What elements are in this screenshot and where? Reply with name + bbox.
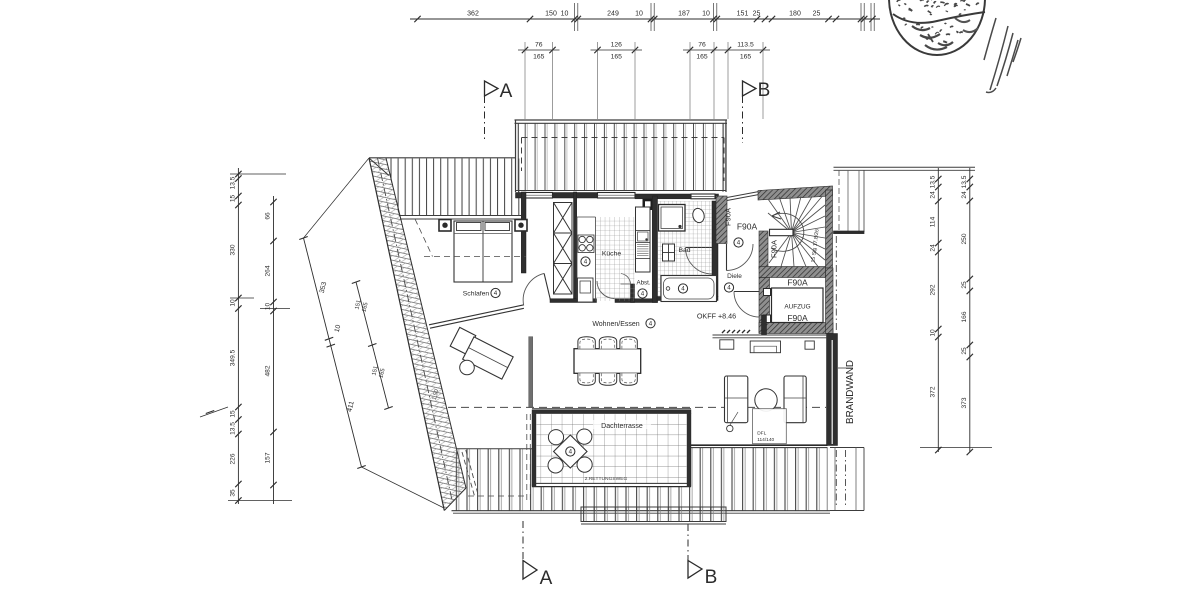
- svg-text:150: 150: [545, 11, 557, 18]
- svg-text:4: 4: [681, 286, 685, 293]
- svg-text:249: 249: [607, 11, 619, 18]
- svg-text:114: 114: [929, 216, 936, 227]
- svg-text:114/140: 114/140: [757, 437, 774, 443]
- svg-text:Schlafen: Schlafen: [463, 291, 490, 298]
- svg-text:24: 24: [929, 244, 936, 252]
- svg-text:Wohnen/Essen: Wohnen/Essen: [592, 321, 639, 328]
- svg-text:362: 362: [467, 11, 479, 18]
- svg-text:10: 10: [702, 11, 710, 18]
- svg-text:DFL: DFL: [757, 431, 766, 437]
- svg-text:250: 250: [961, 233, 968, 244]
- svg-text:13.5: 13.5: [230, 176, 237, 189]
- svg-text:76: 76: [535, 42, 543, 49]
- svg-text:Dachterrasse: Dachterrasse: [601, 423, 643, 430]
- svg-text:10: 10: [561, 11, 569, 18]
- svg-text:10: 10: [635, 11, 643, 18]
- svg-text:66: 66: [265, 212, 272, 220]
- svg-text:Bad: Bad: [678, 247, 690, 254]
- svg-text:330: 330: [230, 244, 237, 255]
- svg-text:180: 180: [789, 11, 801, 18]
- svg-text:4: 4: [584, 259, 588, 266]
- svg-text:25: 25: [753, 11, 761, 18]
- svg-text:BRANDWAND: BRANDWAND: [845, 360, 856, 424]
- svg-text:AUFZUG: AUFZUG: [784, 304, 810, 311]
- svg-text:165: 165: [696, 54, 708, 61]
- svg-text:113.5: 113.5: [737, 42, 754, 49]
- svg-text:166: 166: [961, 311, 968, 322]
- svg-text:F90A: F90A: [770, 240, 779, 258]
- svg-text:372: 372: [929, 386, 936, 397]
- svg-text:187: 187: [678, 11, 690, 18]
- svg-text:76: 76: [698, 42, 706, 49]
- svg-text:4: 4: [727, 285, 731, 292]
- svg-text:157: 157: [265, 452, 272, 463]
- svg-text:Küche: Küche: [602, 251, 621, 258]
- svg-text:482: 482: [265, 365, 272, 376]
- svg-text:B: B: [758, 80, 771, 101]
- svg-text:24: 24: [961, 191, 968, 199]
- svg-text:349.5: 349.5: [230, 349, 237, 366]
- svg-text:35: 35: [230, 489, 237, 497]
- svg-text:A: A: [540, 568, 553, 589]
- svg-text:24: 24: [929, 191, 936, 199]
- svg-text:373: 373: [961, 397, 968, 408]
- svg-text:10: 10: [265, 303, 272, 311]
- svg-text:25: 25: [961, 281, 968, 289]
- svg-text:25: 25: [961, 347, 968, 355]
- svg-text:126: 126: [611, 42, 623, 49]
- svg-text:2.RETTUNGSWEG: 2.RETTUNGSWEG: [585, 476, 628, 482]
- svg-text:13.5: 13.5: [929, 175, 936, 188]
- svg-text:4: 4: [737, 240, 741, 247]
- svg-text:292: 292: [929, 284, 936, 295]
- svg-text:151: 151: [737, 11, 749, 18]
- svg-text:13.5: 13.5: [230, 422, 237, 435]
- svg-text:15: 15: [230, 410, 237, 418]
- svg-text:10: 10: [929, 329, 936, 337]
- svg-text:165: 165: [533, 54, 545, 61]
- svg-text:13.5: 13.5: [961, 175, 968, 188]
- svg-text:10: 10: [230, 299, 237, 307]
- svg-text:4: 4: [494, 290, 498, 297]
- svg-text:165: 165: [611, 54, 623, 61]
- svg-text:Abst.: Abst.: [636, 280, 650, 287]
- svg-text:264: 264: [265, 265, 272, 276]
- svg-text:4: 4: [649, 321, 653, 328]
- svg-text:F90A: F90A: [737, 222, 758, 232]
- svg-text:F90A: F90A: [724, 208, 733, 226]
- svg-text:Diele: Diele: [727, 273, 742, 280]
- svg-text:OKFF +8.46: OKFF +8.46: [697, 312, 736, 321]
- svg-text:4: 4: [569, 449, 573, 456]
- svg-text:25: 25: [813, 11, 821, 18]
- svg-text:A: A: [500, 81, 513, 102]
- svg-text:226: 226: [230, 453, 237, 464]
- svg-text:F90A: F90A: [787, 313, 808, 323]
- svg-text:B: B: [705, 567, 718, 588]
- svg-text:F90A: F90A: [787, 278, 808, 288]
- svg-text:15: 15: [230, 195, 237, 203]
- svg-text:165: 165: [740, 54, 752, 61]
- svg-text:4: 4: [641, 291, 645, 298]
